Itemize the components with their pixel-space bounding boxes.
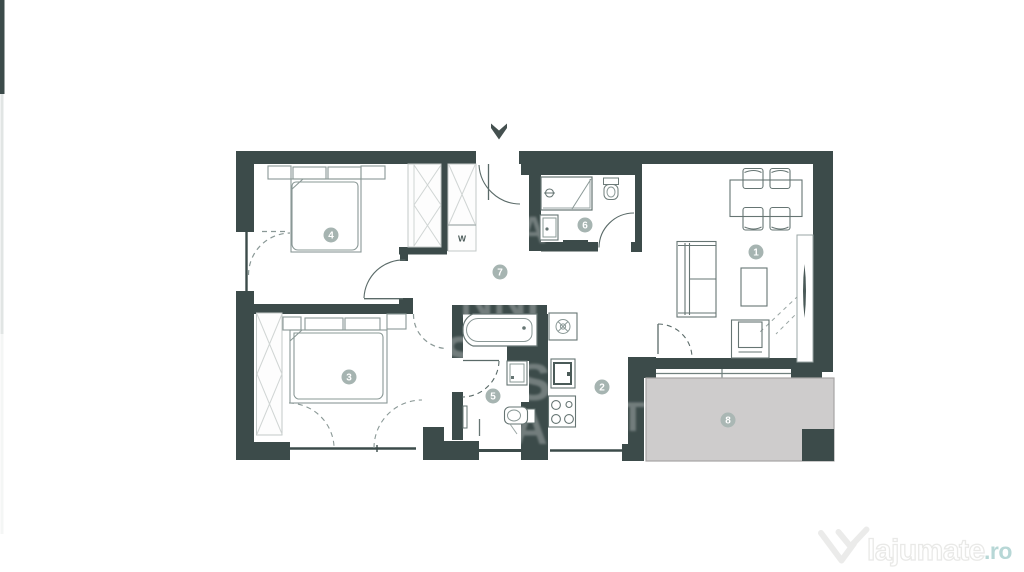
svg-text:1: 1 — [753, 248, 759, 259]
svg-text:2: 2 — [599, 383, 605, 394]
svg-text:.ro: .ro — [984, 538, 1012, 564]
svg-text:T: T — [620, 393, 646, 440]
svg-text:7: 7 — [497, 268, 503, 279]
svg-text:6: 6 — [582, 221, 588, 232]
svg-text:8: 8 — [725, 416, 731, 427]
svg-text:4: 4 — [328, 231, 334, 242]
svg-text:W: W — [458, 234, 467, 244]
svg-text:3: 3 — [346, 373, 352, 384]
svg-text:5: 5 — [490, 392, 496, 403]
svg-text:lajumate: lajumate — [867, 534, 985, 567]
